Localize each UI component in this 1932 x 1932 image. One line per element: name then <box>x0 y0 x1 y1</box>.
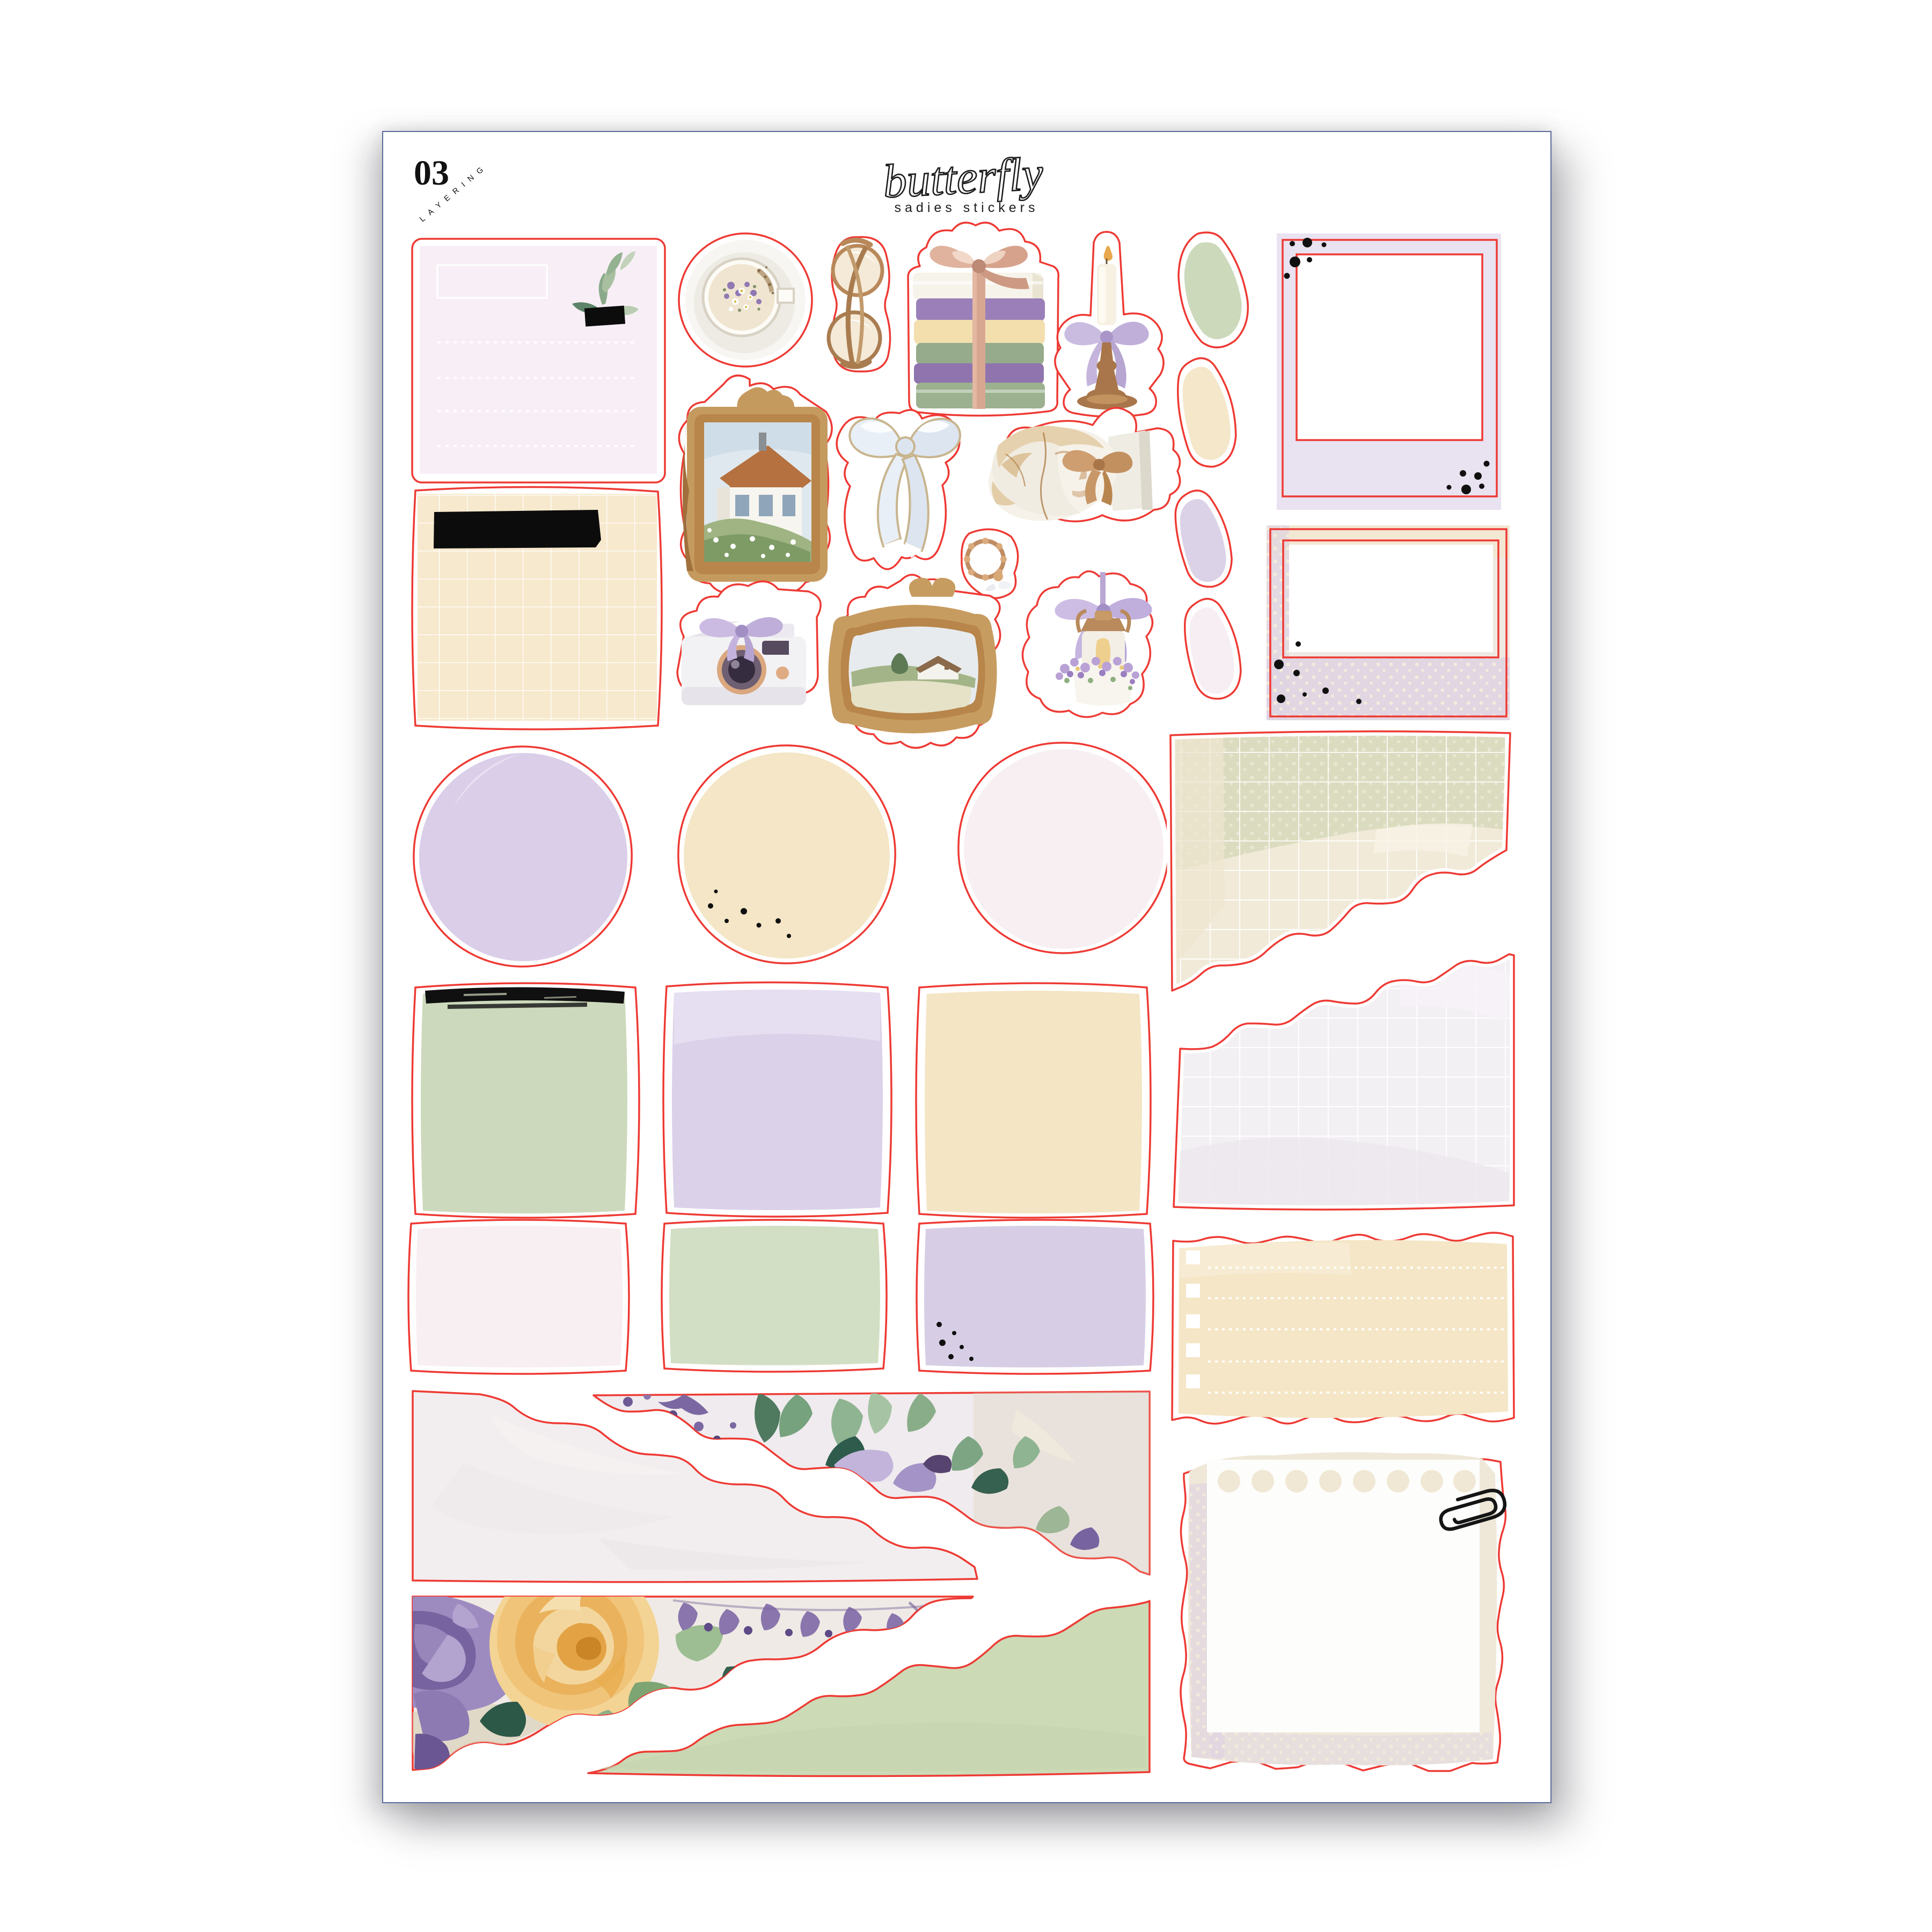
svg-text:sadies stickers: sadies stickers <box>895 200 1039 215</box>
svg-text:butterfly: butterfly <box>882 148 1045 208</box>
svg-text:03: 03 <box>414 153 449 193</box>
